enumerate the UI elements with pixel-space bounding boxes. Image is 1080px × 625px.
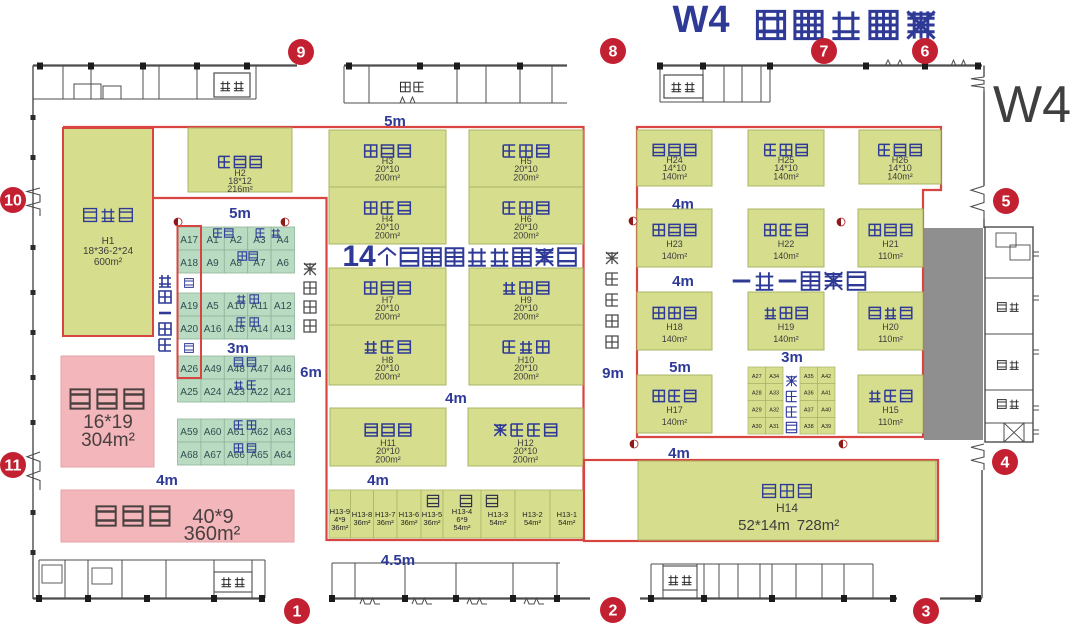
svg-text:36m²: 36m² <box>353 518 371 527</box>
svg-text:A16: A16 <box>204 324 222 335</box>
svg-text:200m²: 200m² <box>513 371 539 381</box>
svg-text:A62: A62 <box>251 427 269 438</box>
svg-text:A9: A9 <box>206 258 219 269</box>
svg-text:W4: W4 <box>993 76 1071 134</box>
svg-text:H21: H21 <box>882 239 899 249</box>
svg-text:36m²: 36m² <box>423 518 441 527</box>
svg-text:200m²: 200m² <box>513 172 539 182</box>
svg-text:A33: A33 <box>769 391 779 397</box>
svg-text:A63: A63 <box>274 427 292 438</box>
svg-text:4: 4 <box>1001 455 1010 472</box>
svg-text:A7: A7 <box>253 258 266 269</box>
svg-text:A49: A49 <box>204 364 222 375</box>
svg-text:A30: A30 <box>752 424 762 430</box>
svg-text:1: 1 <box>293 604 302 621</box>
svg-text:A68: A68 <box>180 450 198 461</box>
svg-text:A5: A5 <box>206 301 219 312</box>
svg-text:A59: A59 <box>180 427 198 438</box>
svg-text:A24: A24 <box>204 387 222 398</box>
svg-text:5: 5 <box>1002 194 1011 211</box>
svg-text:A36: A36 <box>804 391 814 397</box>
svg-text:3m: 3m <box>227 340 249 357</box>
svg-text:3m: 3m <box>781 349 803 366</box>
svg-text:A11: A11 <box>251 301 268 312</box>
svg-text:A46: A46 <box>274 364 292 375</box>
svg-text:A6: A6 <box>277 258 290 269</box>
svg-text:5m: 5m <box>384 113 406 130</box>
svg-text:A31: A31 <box>769 424 779 430</box>
svg-text:6: 6 <box>921 44 930 61</box>
svg-text:8: 8 <box>609 44 618 61</box>
svg-text:304m²: 304m² <box>81 430 135 451</box>
svg-text:200m²: 200m² <box>513 230 539 240</box>
svg-text:140m²: 140m² <box>662 417 688 427</box>
svg-text:7: 7 <box>820 44 829 61</box>
svg-text:A1: A1 <box>206 235 219 246</box>
svg-text:52*14m: 52*14m <box>738 517 790 534</box>
svg-text:600m²: 600m² <box>94 257 123 268</box>
svg-text:140m²: 140m² <box>662 251 688 261</box>
svg-text:360m²: 360m² <box>184 523 241 545</box>
svg-text:A4: A4 <box>277 235 290 246</box>
svg-text:110m²: 110m² <box>878 417 903 427</box>
svg-text:A15: A15 <box>227 324 245 335</box>
svg-text:A10: A10 <box>227 301 245 312</box>
svg-text:4m: 4m <box>367 472 389 489</box>
svg-text:200m²: 200m² <box>375 230 401 240</box>
svg-text:110m²: 110m² <box>878 251 903 261</box>
svg-text:A17: A17 <box>180 235 198 246</box>
svg-text:A22: A22 <box>251 387 269 398</box>
svg-text:200m²: 200m² <box>375 454 401 464</box>
svg-text:140m²: 140m² <box>662 334 688 344</box>
svg-text:H22: H22 <box>778 239 795 249</box>
svg-text:A39: A39 <box>821 424 831 430</box>
svg-text:A65: A65 <box>251 450 269 461</box>
svg-text:140m²: 140m² <box>773 334 799 344</box>
svg-text:5m: 5m <box>229 205 251 222</box>
svg-text:A38: A38 <box>804 424 814 430</box>
svg-text:9: 9 <box>297 45 306 62</box>
svg-text:A61: A61 <box>227 427 245 438</box>
svg-text:4m: 4m <box>445 390 467 407</box>
svg-text:H20: H20 <box>882 322 899 332</box>
svg-text:A14: A14 <box>251 324 269 335</box>
svg-text:H19: H19 <box>778 322 795 332</box>
svg-text:A25: A25 <box>180 387 198 398</box>
svg-text:A2: A2 <box>230 235 243 246</box>
svg-text:A3: A3 <box>253 235 266 246</box>
svg-text:4.5m: 4.5m <box>381 552 415 569</box>
svg-text:54m²: 54m² <box>558 518 576 527</box>
svg-text:A28: A28 <box>752 391 762 397</box>
svg-text:A20: A20 <box>180 324 198 335</box>
svg-text:9m: 9m <box>602 365 624 382</box>
svg-text:W4: W4 <box>673 0 730 41</box>
svg-text:4m: 4m <box>672 273 694 290</box>
svg-text:200m²: 200m² <box>513 454 539 464</box>
svg-text:A41: A41 <box>821 391 831 397</box>
svg-text:H17: H17 <box>666 405 683 415</box>
svg-text:A34: A34 <box>769 374 779 380</box>
svg-text:H15: H15 <box>882 405 899 415</box>
svg-text:A64: A64 <box>274 450 292 461</box>
svg-text:10: 10 <box>4 193 22 210</box>
svg-text:H18: H18 <box>666 322 683 332</box>
svg-text:54m²: 54m² <box>453 523 471 532</box>
svg-text:A47: A47 <box>251 364 269 375</box>
svg-text:5m: 5m <box>669 359 691 376</box>
svg-text:A29: A29 <box>752 408 762 414</box>
svg-text:110m²: 110m² <box>878 334 903 344</box>
svg-text:18*36-2*24: 18*36-2*24 <box>83 246 133 257</box>
svg-text:200m²: 200m² <box>375 371 401 381</box>
svg-text:200m²: 200m² <box>375 172 401 182</box>
svg-text:54m²: 54m² <box>489 518 507 527</box>
svg-text:3: 3 <box>922 604 931 621</box>
svg-text:A60: A60 <box>204 427 222 438</box>
svg-text:A12: A12 <box>274 301 292 312</box>
svg-text:140m²: 140m² <box>773 251 799 261</box>
svg-text:A26: A26 <box>180 364 198 375</box>
svg-text:A40: A40 <box>821 408 831 414</box>
svg-text:140m²: 140m² <box>887 171 913 181</box>
svg-text:200m²: 200m² <box>375 311 401 321</box>
svg-text:140m²: 140m² <box>773 171 799 181</box>
svg-text:6m: 6m <box>300 364 322 381</box>
svg-text:A27: A27 <box>752 374 762 380</box>
svg-text:11: 11 <box>5 458 22 475</box>
svg-text:H23: H23 <box>666 239 683 249</box>
svg-text:216m²: 216m² <box>227 184 253 194</box>
svg-text:728m²: 728m² <box>797 517 840 534</box>
svg-text:A42: A42 <box>821 374 831 380</box>
svg-text:A19: A19 <box>180 301 198 312</box>
svg-text:140m²: 140m² <box>662 171 688 181</box>
svg-text:A8: A8 <box>230 258 243 269</box>
svg-text:36m²: 36m² <box>400 518 418 527</box>
svg-text:A35: A35 <box>804 374 814 380</box>
svg-text:2: 2 <box>609 603 618 620</box>
svg-text:4m: 4m <box>668 445 690 462</box>
svg-text:A67: A67 <box>204 450 222 461</box>
svg-text:H14: H14 <box>776 501 798 515</box>
svg-text:A13: A13 <box>274 324 292 335</box>
svg-text:54m²: 54m² <box>524 518 542 527</box>
svg-text:4m: 4m <box>156 472 178 489</box>
svg-text:36m²: 36m² <box>331 523 349 532</box>
svg-text:A32: A32 <box>769 408 779 414</box>
svg-text:A21: A21 <box>274 387 292 398</box>
svg-text:A18: A18 <box>180 258 198 269</box>
svg-text:A37: A37 <box>804 408 814 414</box>
svg-text:200m²: 200m² <box>513 311 539 321</box>
svg-text:36m²: 36m² <box>377 518 395 527</box>
